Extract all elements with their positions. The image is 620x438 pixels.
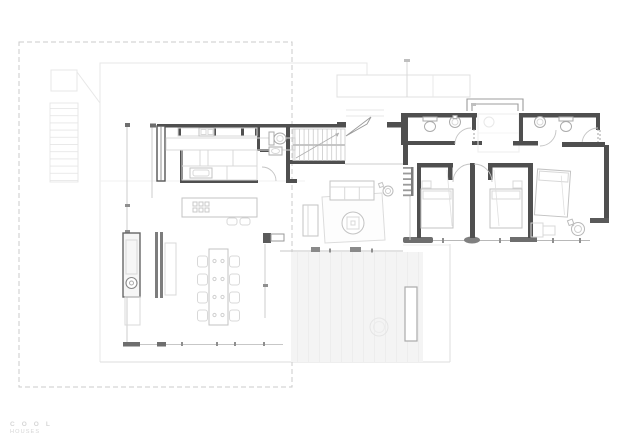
- entry-porch-steps: [346, 110, 384, 116]
- brand-logo: C O O L HOUSES: [10, 421, 52, 435]
- door-swing: [262, 167, 276, 181]
- bedroom-2: [474, 163, 533, 238]
- logo-line-1: C O O L: [10, 421, 52, 428]
- sink-icon: [269, 147, 282, 155]
- coffee-table: [342, 212, 364, 234]
- bedroom-wing: [403, 117, 609, 238]
- terrace-planter: [405, 287, 417, 341]
- plant-icon: [567, 219, 584, 235]
- logo-line-2: HOUSES: [10, 429, 40, 435]
- bathroom-2: [513, 113, 600, 146]
- fireplace-stove: [123, 233, 140, 325]
- desk: [531, 223, 555, 237]
- bedroom-1: [417, 163, 471, 238]
- dining-table: [209, 249, 228, 325]
- door-swing: [453, 164, 471, 182]
- door-swing: [582, 128, 598, 144]
- nightstand: [513, 181, 522, 188]
- toilet-icon: [423, 117, 437, 132]
- sofa: [330, 181, 374, 200]
- toilet-icon: [559, 117, 573, 132]
- entry-door: [346, 117, 371, 136]
- bed: [534, 169, 570, 217]
- bed: [490, 170, 522, 228]
- bathroom-1: [401, 113, 482, 145]
- door-swing: [540, 130, 556, 146]
- partition-wall: [470, 163, 475, 238]
- floor-plan-drawing: C O O L HOUSES: [0, 0, 620, 438]
- nightstand: [422, 181, 431, 188]
- shower-room: [478, 114, 519, 152]
- floor-plan-canvas: C O O L HOUSES: [0, 0, 620, 438]
- wall-shelf: [403, 167, 414, 196]
- sink-icon: [535, 117, 546, 128]
- roof-chimney-outline: [337, 75, 470, 97]
- dining-area: [123, 232, 240, 325]
- bar-stool: [240, 218, 250, 225]
- toilet-icon: [269, 132, 286, 145]
- entry-stairs: [288, 117, 408, 164]
- sliding-panel: [155, 232, 176, 298]
- exterior-stairs: [50, 103, 78, 182]
- terrace: [291, 252, 423, 362]
- powder-room: [262, 132, 286, 181]
- door-swing: [455, 128, 471, 144]
- lounge-chair: [303, 205, 318, 236]
- living-room: [303, 167, 414, 243]
- bar-stool: [227, 218, 237, 225]
- column: [263, 233, 271, 243]
